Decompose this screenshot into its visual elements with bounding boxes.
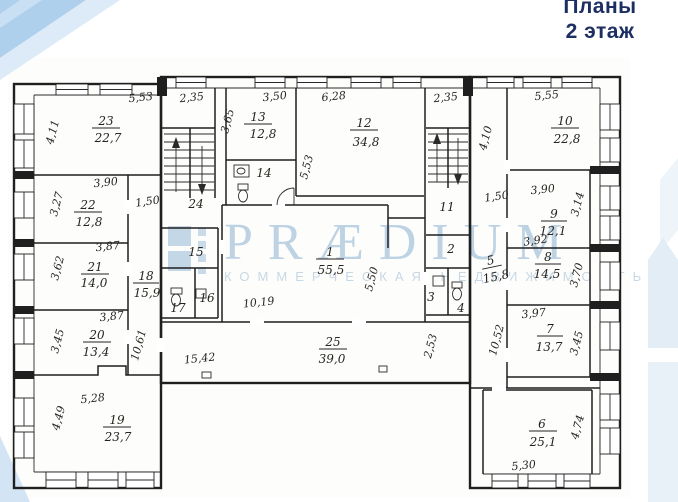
dim-r10-left: 4,10 [476,125,495,153]
room-12-area: 34,8 [353,135,380,149]
room-23-number: 23 [97,114,114,128]
dim-r13-top: 3,50 [262,89,288,104]
room-25-area: 39,0 [319,352,346,366]
room-label-10: 10 22,8 [551,114,581,146]
room-10-area: 22,8 [553,132,581,146]
room-22-area: 12,8 [76,215,103,229]
room-15-number: 15 [188,245,203,259]
room-label-23: 23 22,7 [92,114,122,145]
room-label-12: 12 34,8 [350,116,380,149]
room-22-number: 22 [79,198,95,212]
dim-r21-left: 3,62 [48,255,67,282]
dim-r12-top: 6,28 [321,89,347,104]
room-21-area: 14,0 [81,276,108,290]
room-label-25: 25 39,0 [319,335,347,366]
room-20-number: 20 [88,328,105,342]
room-19-number: 19 [109,413,125,427]
room-25-number: 25 [324,335,340,349]
room-7-number: 7 [546,322,554,336]
room-label-18: 18 15,9 [133,269,161,300]
room-6-area: 25,1 [529,435,557,449]
room-label-21: 21 14,0 [81,260,109,290]
dim-r7-right: 3,45 [567,330,586,357]
room-label-13: 13 12,8 [244,110,277,141]
dim-r21-top: 3,87 [95,239,121,254]
dim-r22-left: 3,27 [47,191,66,218]
staircase-left [164,128,214,198]
dim-r7-top: 3,97 [521,306,547,321]
dim-r19-left: 4,49 [49,405,68,433]
dim-corridor25-left: 15,42 [183,350,216,366]
dim-r22-top: 3,90 [93,175,119,190]
room-1-number: 1 [326,245,334,259]
room-label-5: 5 15,8 [478,250,511,286]
room-10-number: 10 [557,114,573,128]
dim-r20-top: 3,87 [99,309,125,324]
room-3-number: 3 [427,290,435,304]
room-24-number: 24 [187,197,203,211]
room-9-number: 9 [550,207,558,221]
dim-r1-bottom: 10,19 [242,294,275,310]
dim-corridor25-height: 2,53 [421,333,440,361]
room-label-6: 6 25,1 [529,417,557,449]
room-20-area: 13,4 [83,345,110,359]
room-6-number: 6 [538,417,546,431]
dim-r9-top: 3,90 [530,182,556,197]
room-13-number: 13 [250,110,266,124]
room-label-19: 19 23,7 [103,413,132,444]
floor-plan: 23 22,7 22 12,8 21 14,0 20 13,4 19 [0,0,678,502]
dim-r10-top: 5,55 [534,88,560,103]
room-12-number: 12 [356,116,371,130]
room-18-area: 15,9 [134,286,161,300]
room-label-7: 7 13,7 [536,322,563,354]
dim-r13-left: 3,65 [218,108,237,135]
room-2-number: 2 [446,242,455,256]
dim-r23-left: 4,11 [43,119,62,147]
dim-corridor-left-width: 1,50 [134,193,160,209]
room-8-number: 8 [544,250,552,264]
room-19-area: 23,7 [104,430,132,444]
dim-corridor-right-length: 10,52 [486,323,507,357]
room-5-number: 5 [485,253,495,268]
room-11-number: 11 [439,200,454,214]
room-label-22: 22 12,8 [74,198,103,229]
room-13-area: 12,8 [250,127,277,141]
staircase-right [428,128,468,188]
room-21-number: 21 [86,260,102,274]
dim-r6-right: 4,74 [568,414,587,442]
room-label-8: 8 14,5 [534,250,561,281]
dim-r19-top: 5,28 [80,391,106,406]
room-14-number: 14 [256,166,271,180]
brochure-page: Планы 2 этаж PRÆDIUM КОММЕРЧЕСКАЯ НЕДВИЖ… [0,0,678,502]
dim-r1-right: 5,50 [362,266,381,293]
room-7-area: 13,7 [536,340,563,354]
room-4-number: 4 [456,301,465,315]
dim-r8-top: 3,92 [522,232,548,248]
room-label-20: 20 13,4 [83,328,111,359]
dim-r9-right: 3,14 [568,191,587,218]
room-23-area: 22,7 [94,131,122,145]
dim-r6-bottom: 5,30 [511,458,537,473]
room-8-area: 14,5 [534,267,561,281]
dim-r23-top: 5,53 [128,90,154,105]
room-16-number: 16 [199,291,215,305]
room-label-1: 1 55,5 [316,245,344,277]
dim-stair-left: 2,35 [178,90,205,106]
dim-r8-right: 3,70 [567,262,586,289]
dim-corridor-right-width: 1,50 [483,188,509,204]
dim-stair-right: 2,35 [432,90,459,106]
room-17-number: 17 [170,301,186,315]
room-18-number: 18 [138,269,154,283]
room-1-area: 55,5 [318,263,345,277]
dim-r12-left: 5,53 [297,154,316,181]
dim-r20-left: 3,45 [48,328,67,355]
